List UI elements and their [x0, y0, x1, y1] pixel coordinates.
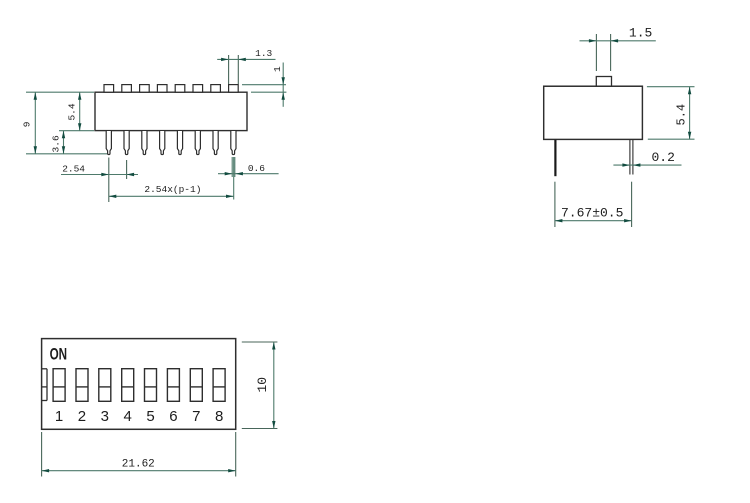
svg-text:1.3: 1.3	[255, 48, 272, 59]
svg-text:5: 5	[146, 408, 154, 425]
svg-text:ON: ON	[50, 344, 68, 363]
svg-text:6: 6	[169, 408, 177, 425]
svg-text:1.5: 1.5	[629, 26, 652, 41]
svg-text:1: 1	[272, 66, 283, 72]
svg-text:9: 9	[22, 121, 33, 127]
svg-text:7: 7	[192, 408, 200, 425]
svg-text:3.6: 3.6	[50, 135, 61, 152]
svg-text:10: 10	[255, 377, 270, 393]
svg-text:2.54x(p-1): 2.54x(p-1)	[144, 184, 201, 195]
svg-text:5.4: 5.4	[67, 103, 78, 120]
svg-text:5.4: 5.4	[675, 104, 689, 126]
svg-text:1: 1	[55, 408, 63, 425]
svg-text:3: 3	[101, 408, 109, 425]
svg-text:7.67±0.5: 7.67±0.5	[561, 205, 623, 220]
svg-text:4: 4	[124, 408, 132, 425]
svg-text:21.62: 21.62	[122, 458, 155, 470]
svg-text:0.2: 0.2	[651, 150, 674, 165]
svg-text:2.54: 2.54	[62, 164, 85, 175]
svg-text:0.6: 0.6	[248, 163, 265, 174]
svg-text:8: 8	[215, 408, 223, 425]
svg-text:2: 2	[78, 408, 86, 425]
